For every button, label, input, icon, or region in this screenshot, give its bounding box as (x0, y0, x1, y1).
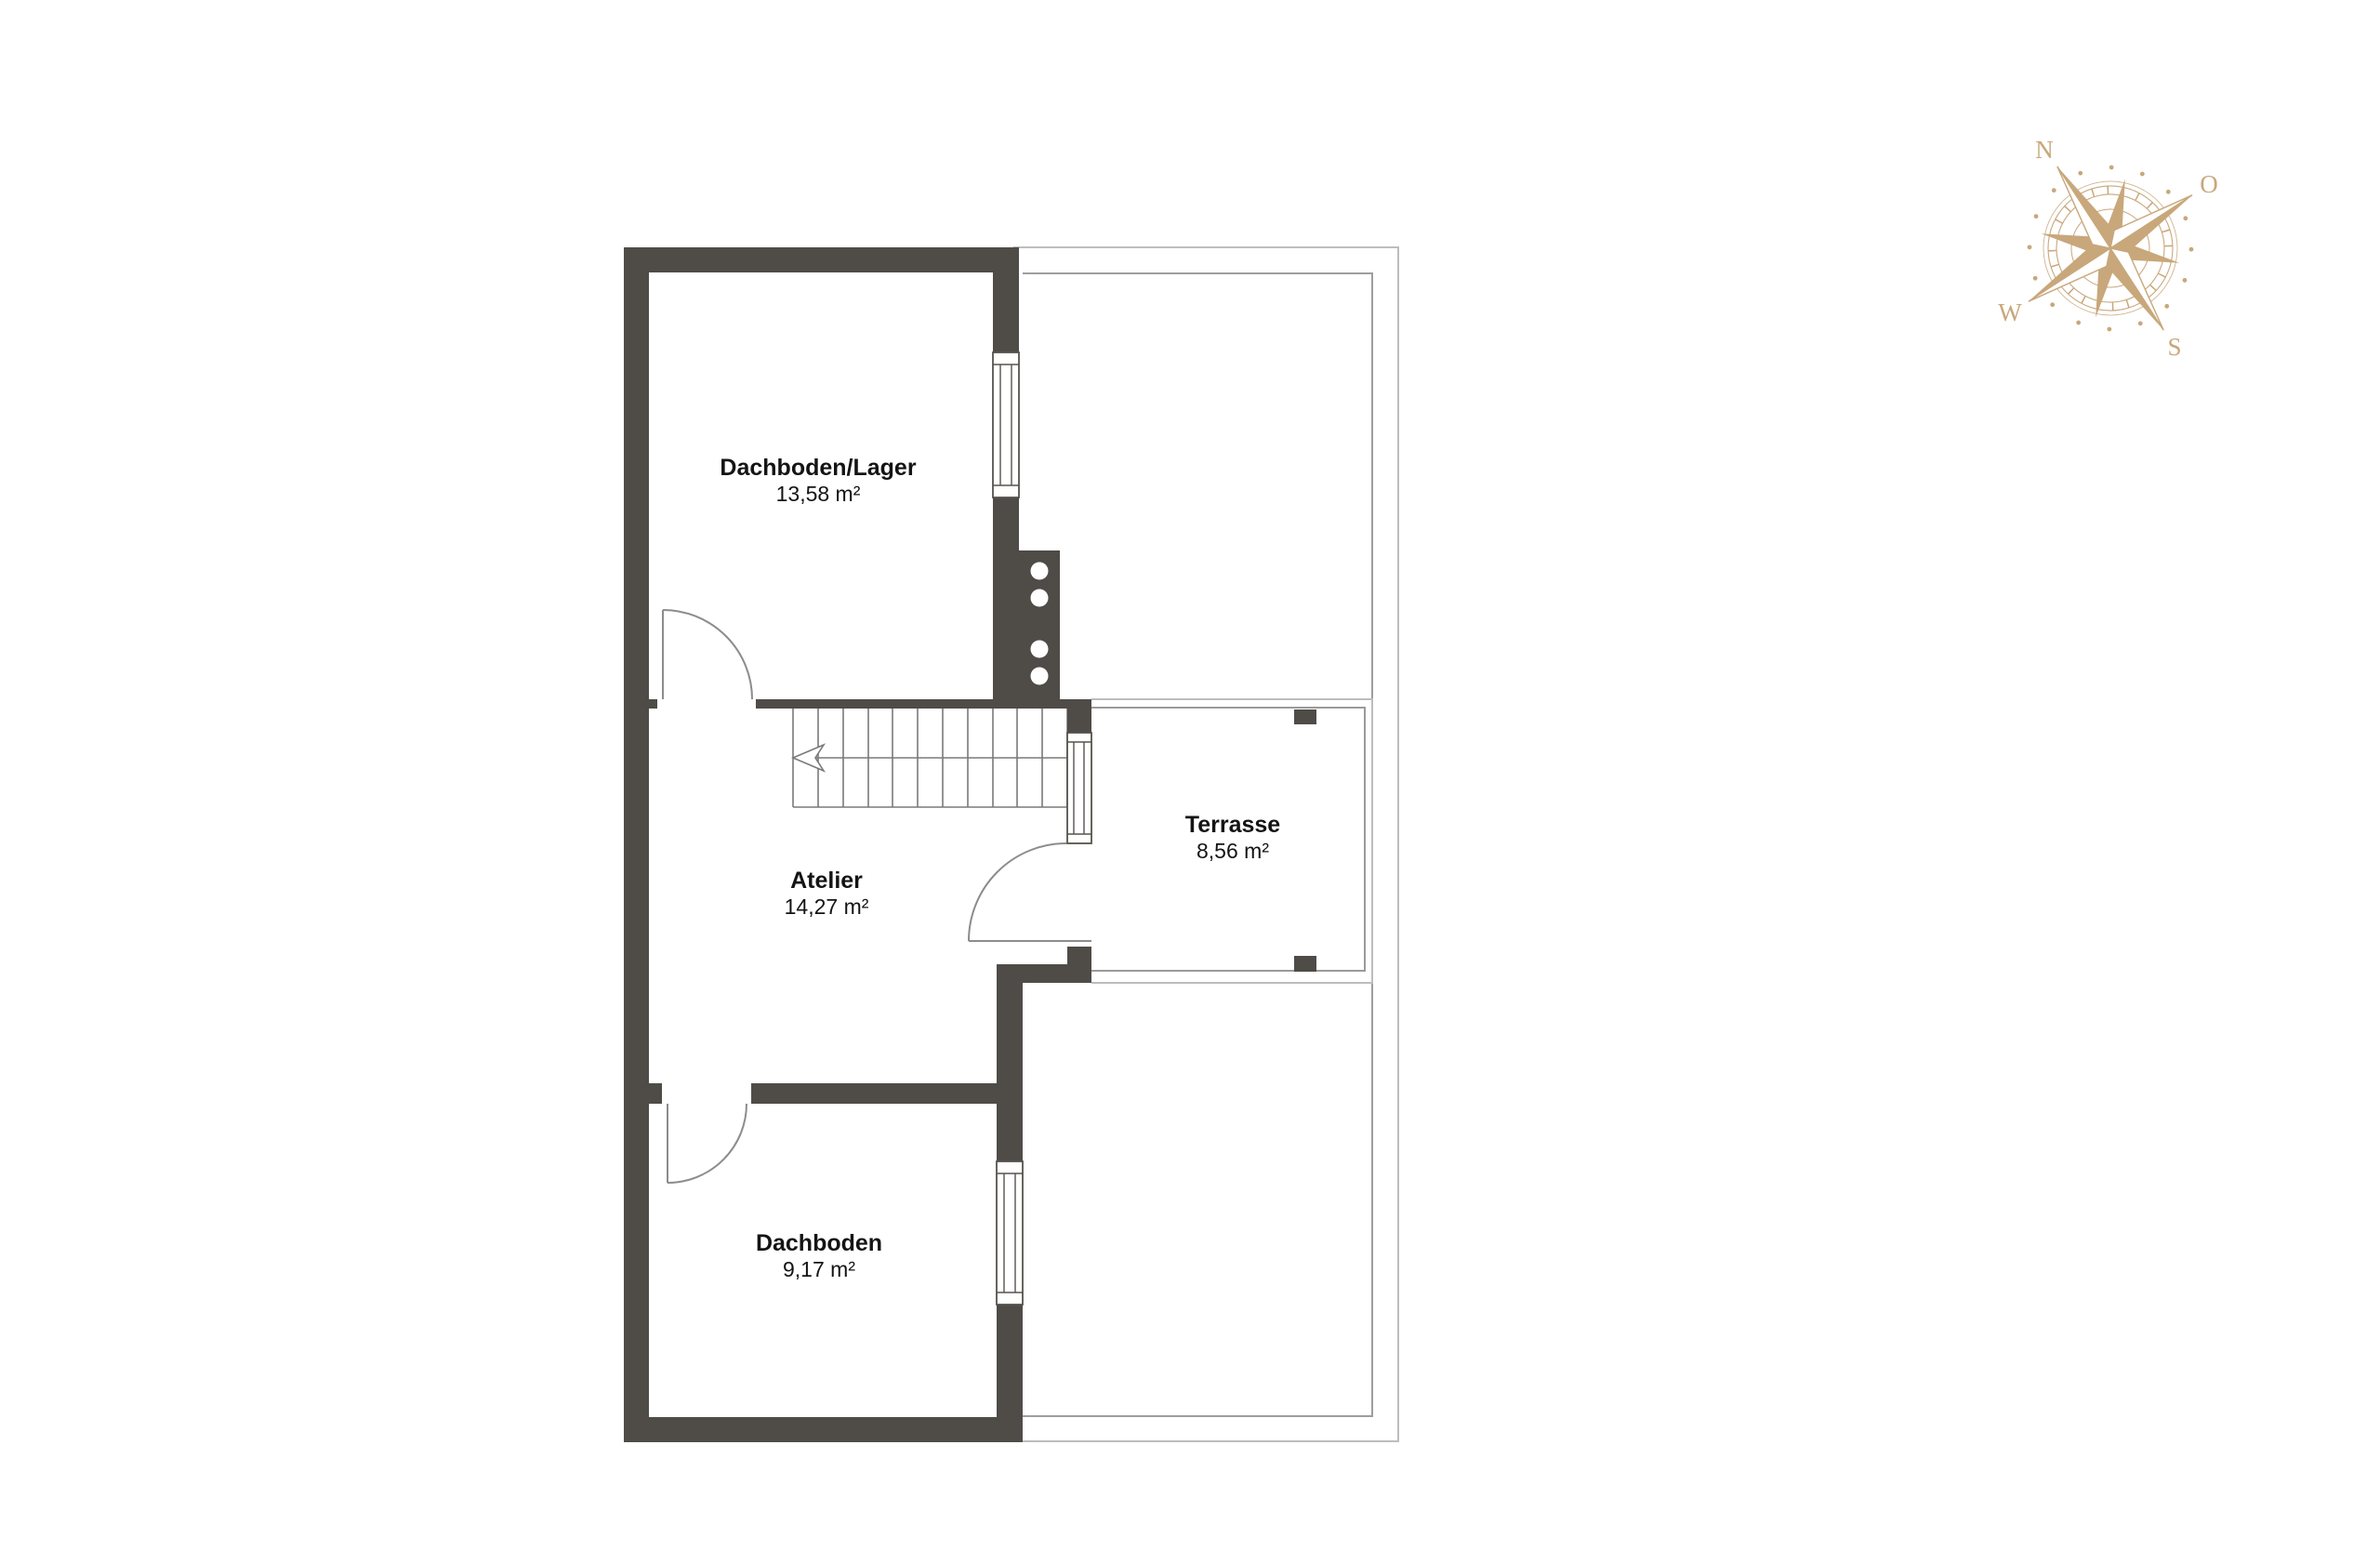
door-dachboden-lager (663, 610, 752, 699)
flue-hole (1031, 641, 1049, 658)
terrasse-post-north (1294, 709, 1316, 724)
compass-label-east: O (2200, 170, 2218, 198)
compass-dot (2049, 301, 2056, 308)
window-dachboden (997, 1161, 1023, 1305)
window-frame (997, 1161, 1023, 1305)
compass-cardinal-points (1976, 113, 2245, 383)
exterior-wall-west (624, 247, 649, 1442)
door-jamb-stub-west-upper (648, 699, 657, 709)
compass-dot (2076, 320, 2082, 325)
compass-dot (2107, 327, 2111, 332)
compass-dot (2028, 245, 2032, 249)
room-area: 8,56 m² (1185, 838, 1280, 864)
door-dachboden (668, 1104, 747, 1183)
room-area: 13,58 m² (720, 481, 916, 507)
exterior-wall-south (624, 1417, 1023, 1442)
flue-hole (1031, 590, 1049, 607)
flue-hole (1031, 563, 1049, 580)
window-dachboden-lager (993, 352, 1019, 497)
wall-east-lower-above-window (997, 964, 1023, 1161)
room-label-dachboden-lager: Dachboden/Lager 13,58 m² (720, 455, 916, 507)
door-terrasse (969, 843, 1091, 941)
wall-east-upper-below-window (993, 497, 1019, 699)
compass-dot (2109, 166, 2114, 170)
floor-plan-drawing: N O S W (0, 0, 2380, 1564)
compass-dot (2033, 214, 2039, 219)
window-frame (993, 352, 1019, 497)
wall-east-upper-above-window (993, 272, 1019, 352)
door-swing-arc (668, 1104, 747, 1183)
wall-east-lower-below-window (997, 1305, 1023, 1442)
door-swing-arc (969, 843, 1066, 941)
compass-dot (2051, 187, 2057, 193)
compass-dot (2078, 170, 2083, 176)
compass-dot (2139, 171, 2145, 177)
page: { "floor_plan": { "rooms": [ { "name": "… (0, 0, 2380, 1564)
compass-dot (2137, 321, 2143, 326)
compass-rose (1976, 113, 2245, 383)
exterior-wall-north (624, 247, 1019, 272)
room-area: 9,17 m² (756, 1256, 882, 1282)
chimney (1019, 550, 1060, 700)
room-name: Dachboden/Lager (720, 455, 916, 481)
room-label-terrasse: Terrasse 8,56 m² (1185, 812, 1280, 864)
floor-plan-canvas: N O S W Dachboden/Lager 13,58 m² Atelier… (0, 0, 2380, 1564)
compass-dot (2183, 216, 2188, 221)
wall-stub-above-terrace-door (1067, 709, 1091, 733)
door-swing-arc (663, 610, 752, 699)
compass-label-south: S (2167, 333, 2181, 361)
room-name: Terrasse (1185, 812, 1280, 838)
wall-atelier-dachboden (751, 1083, 997, 1104)
terrasse-post-south (1294, 956, 1316, 972)
wall-stairhall-north (756, 699, 1091, 709)
door-jamb-stub-west-lower (648, 1083, 662, 1104)
flue-hole (1031, 668, 1049, 685)
room-area: 14,27 m² (785, 894, 869, 920)
room-label-atelier: Atelier 14,27 m² (785, 868, 869, 920)
window-frame (1067, 733, 1091, 843)
compass-dot (2163, 303, 2170, 310)
compass-dot (2032, 275, 2038, 281)
compass-dot (2165, 189, 2172, 195)
compass-rose-body (1976, 113, 2245, 383)
stairs (793, 709, 1067, 807)
compass-dot (2182, 277, 2188, 283)
compass-label-north: N (2035, 136, 2054, 164)
room-name: Dachboden (756, 1230, 882, 1256)
compass-label-west: W (1998, 298, 2022, 326)
glazed-panel-terrace-door (1067, 733, 1091, 843)
room-name: Atelier (785, 868, 869, 894)
room-label-dachboden: Dachboden 9,17 m² (756, 1230, 882, 1282)
compass-dot (2189, 247, 2194, 252)
